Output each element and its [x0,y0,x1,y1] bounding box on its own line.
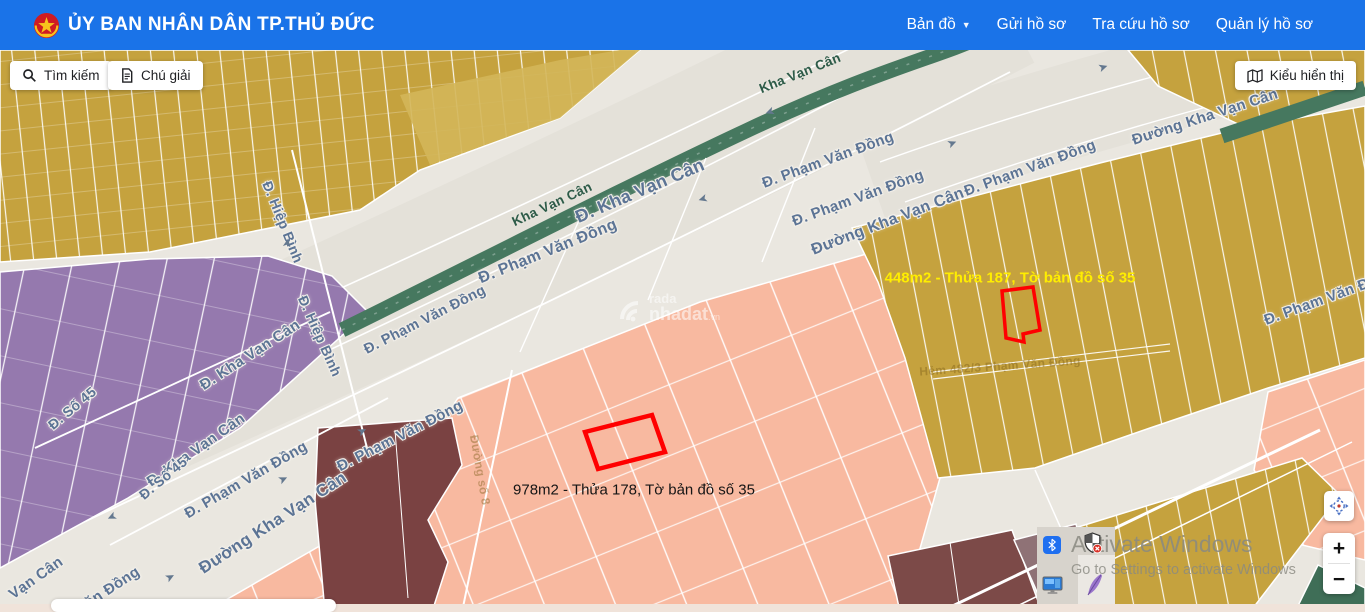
parcel-annotation-448: 448m2 - Thửa 187, Tờ bản đồ số 35 [885,270,1136,287]
nav-item-quan-ly-ho-so[interactable]: Quản lý hồ sơ [1216,16,1313,34]
zoom-in-button[interactable]: + [1323,533,1355,563]
security-shield-icon[interactable] [1082,532,1103,554]
nav-item-tra-cuu-ho-so[interactable]: Tra cứu hồ sơ [1092,16,1190,34]
system-tray-icons [1037,527,1115,612]
remote-desktop-icon[interactable] [1042,576,1063,595]
legend-button[interactable]: Chú giải [108,61,203,90]
parcel-annotation-978: 978m2 - Thửa 178, Tờ bản đồ số 35 [513,482,755,499]
nav-item-ban-do[interactable]: Bản đồ ▼ [907,16,971,34]
zoom-control: + − [1323,533,1355,594]
bluetooth-icon[interactable] [1043,536,1061,554]
search-button[interactable]: Tìm kiếm [10,61,112,90]
chevron-down-icon: ▼ [962,20,971,30]
feather-pen-icon[interactable] [1086,573,1103,597]
zoom-out-button[interactable]: − [1323,564,1355,594]
map-icon [1247,69,1263,83]
header-bar: ỦY BAN NHÂN DÂN TP.THỦ ĐỨC Bản đồ ▼ Gửi … [0,0,1365,50]
app-window: ỦY BAN NHÂN DÂN TP.THỦ ĐỨC Bản đồ ▼ Gửi … [0,0,1365,612]
page-title: ỦY BAN NHÂN DÂN TP.THỦ ĐỨC [68,14,375,36]
locate-button[interactable] [1324,491,1354,521]
vietnam-emblem-logo [33,12,60,39]
document-icon [120,68,134,83]
search-icon [22,68,37,83]
display-mode-button[interactable]: Kiểu hiển thị [1235,61,1356,90]
cadastral-map[interactable] [0,50,1365,612]
main-nav: Bản đồ ▼ Gửi hồ sơ Tra cứu hồ sơ Quản lý… [907,16,1313,34]
nav-item-gui-ho-so[interactable]: Gửi hồ sơ [997,16,1067,34]
bottom-popup-edge [51,599,336,612]
locate-crosshair-icon [1329,496,1349,516]
